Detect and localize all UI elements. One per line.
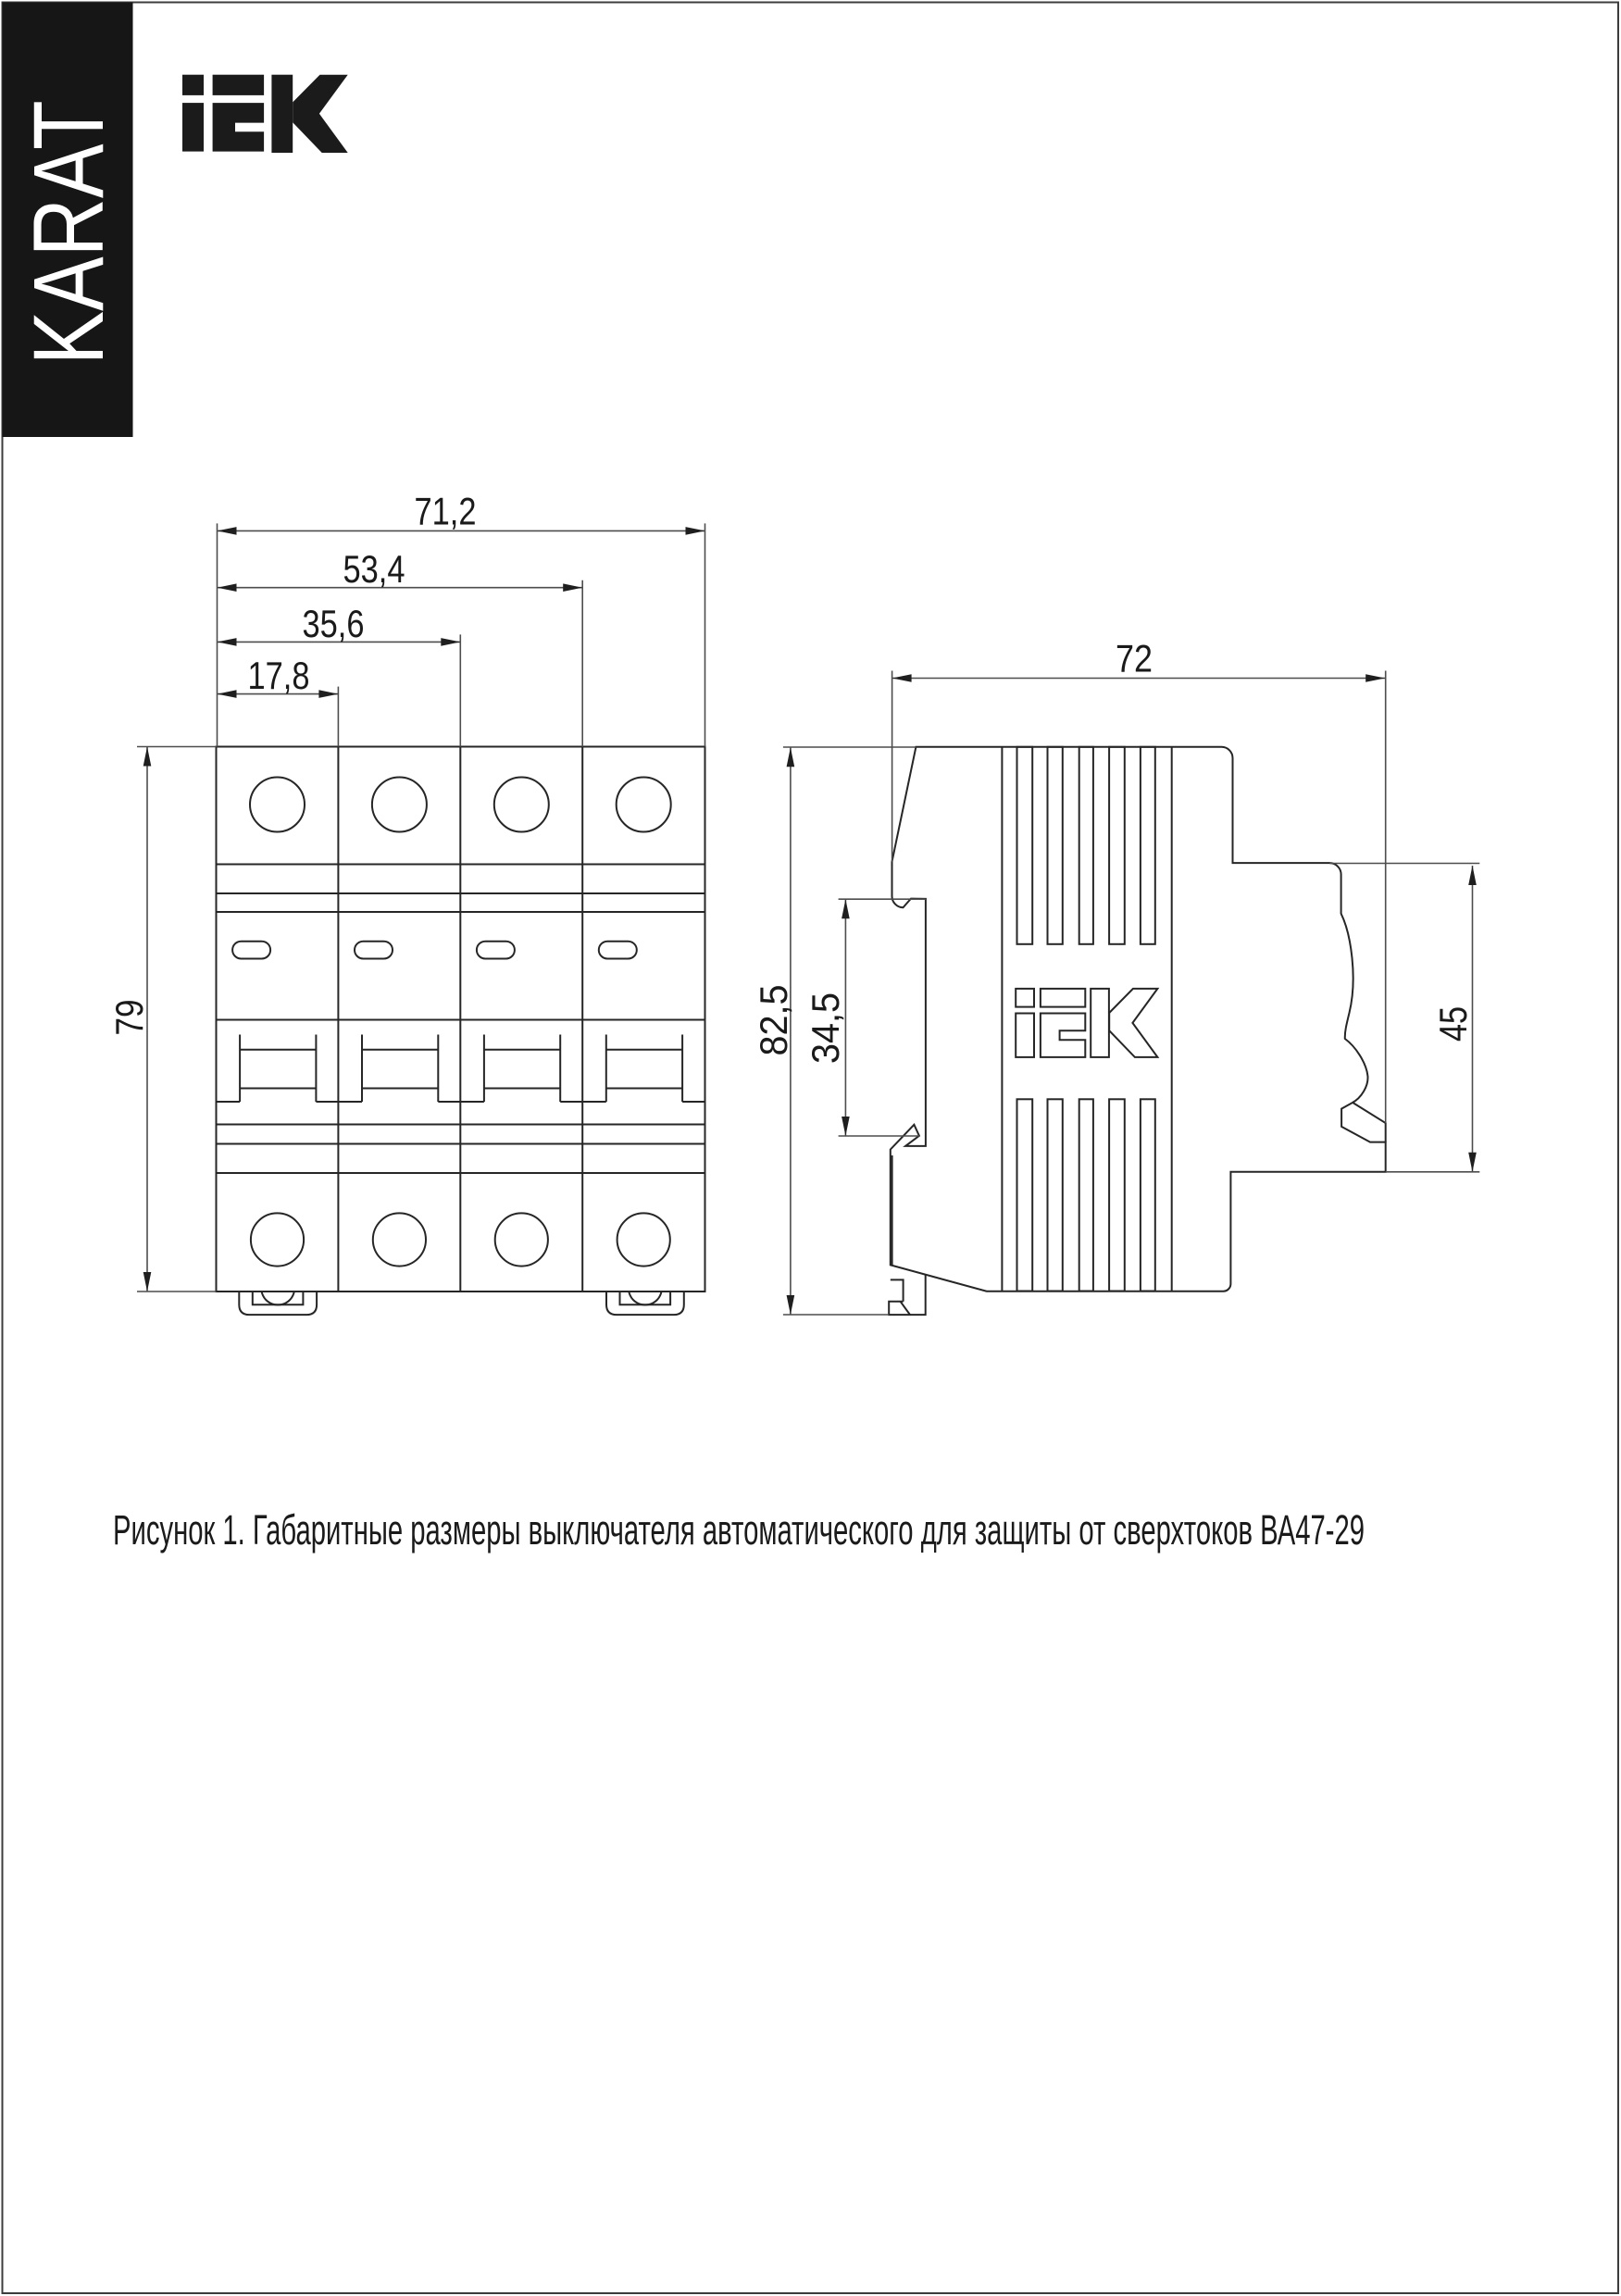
svg-text:53,4: 53,4 (343, 547, 405, 591)
svg-text:34,5: 34,5 (804, 992, 847, 1064)
svg-text:Рисунок 1. Габаритные размеры: Рисунок 1. Габаритные размеры выключател… (113, 1506, 1365, 1554)
svg-text:KARAT: KARAT (12, 100, 124, 365)
svg-text:79: 79 (107, 1000, 151, 1036)
svg-text:17,8: 17,8 (248, 654, 310, 697)
svg-text:72: 72 (1116, 637, 1153, 680)
svg-text:35,6: 35,6 (303, 602, 365, 645)
svg-text:82,5: 82,5 (752, 985, 795, 1056)
svg-text:71,2: 71,2 (415, 490, 477, 533)
svg-text:45: 45 (1431, 1006, 1475, 1042)
